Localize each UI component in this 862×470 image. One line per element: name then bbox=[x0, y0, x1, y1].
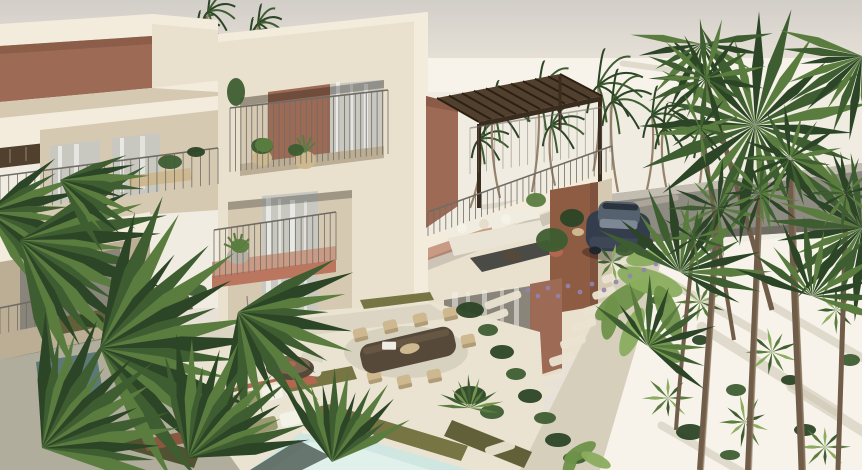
shrub bbox=[255, 138, 273, 152]
coffee-table-small bbox=[502, 251, 522, 261]
sofa-pillow bbox=[501, 214, 511, 224]
architectural-render-image bbox=[0, 0, 862, 470]
shrub bbox=[158, 155, 182, 169]
table-book bbox=[382, 342, 396, 350]
shrub bbox=[187, 147, 205, 157]
lavender-bush bbox=[536, 294, 541, 299]
shrub bbox=[227, 78, 245, 106]
shrub bbox=[536, 228, 568, 252]
angled-brown-wall bbox=[426, 96, 458, 228]
lavender-bush bbox=[578, 290, 583, 295]
shrub bbox=[288, 144, 304, 156]
lavender-bush bbox=[546, 286, 551, 291]
lavender-bush bbox=[590, 282, 595, 287]
shrub bbox=[506, 368, 526, 380]
shrub bbox=[545, 433, 571, 447]
lavender-bush bbox=[566, 284, 571, 289]
lavender-bush bbox=[642, 268, 647, 273]
shrub bbox=[726, 384, 746, 396]
shrub bbox=[456, 302, 484, 318]
lavender-bush bbox=[556, 294, 561, 299]
lavender-bush bbox=[602, 288, 607, 293]
shrub bbox=[560, 209, 584, 227]
shrub bbox=[518, 389, 542, 403]
shrub bbox=[231, 239, 249, 253]
plant-pot bbox=[572, 228, 584, 236]
shrub bbox=[720, 450, 740, 460]
lavender-bush bbox=[628, 274, 633, 279]
lavender-bush bbox=[526, 288, 531, 293]
sofa-pillow bbox=[457, 223, 467, 233]
shrub bbox=[478, 324, 498, 336]
shrub bbox=[490, 345, 514, 359]
lavender-bush bbox=[614, 280, 619, 285]
shrub bbox=[692, 335, 708, 345]
shrub bbox=[534, 412, 556, 424]
sofa-pillow bbox=[479, 219, 489, 229]
shrub bbox=[526, 193, 546, 207]
